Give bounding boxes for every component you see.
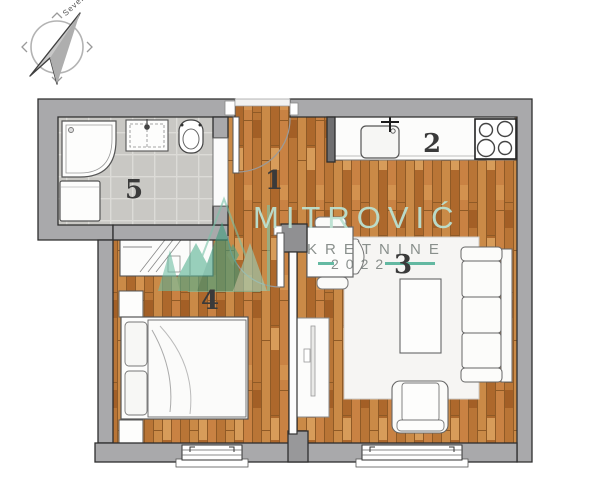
floor-plan-drawing (0, 0, 600, 487)
bathroom-sink-icon (126, 119, 168, 151)
armchair-icon (392, 381, 448, 433)
tv-stand-icon (297, 318, 329, 417)
compass-icon (22, 13, 92, 84)
coffee-table-icon (400, 279, 441, 353)
stove-icon (475, 119, 516, 159)
floor-plan: MITROVIĆ KRETNINE 2022 1 2 3 4 5 Sever (0, 0, 600, 487)
bed-icon (121, 317, 248, 419)
watermark-dash (318, 262, 334, 265)
sofa-icon (461, 247, 512, 382)
room-label-bathroom: 5 (125, 175, 143, 205)
room-label-bedroom: 4 (201, 286, 219, 316)
nightstand-icon (119, 420, 143, 446)
window-icon (356, 445, 468, 467)
room-label-hallway: 1 (265, 166, 283, 196)
room-label-kitchen: 2 (423, 129, 441, 159)
watermark-year-text: 2022 (331, 256, 390, 272)
window-icon (176, 445, 248, 467)
room-label-living-room: 3 (394, 250, 412, 280)
toilet-icon (179, 120, 203, 153)
washing-machine-icon (60, 181, 100, 221)
nightstand-icon (119, 291, 143, 317)
watermark-brand-text: MITROVIĆ (253, 200, 461, 236)
